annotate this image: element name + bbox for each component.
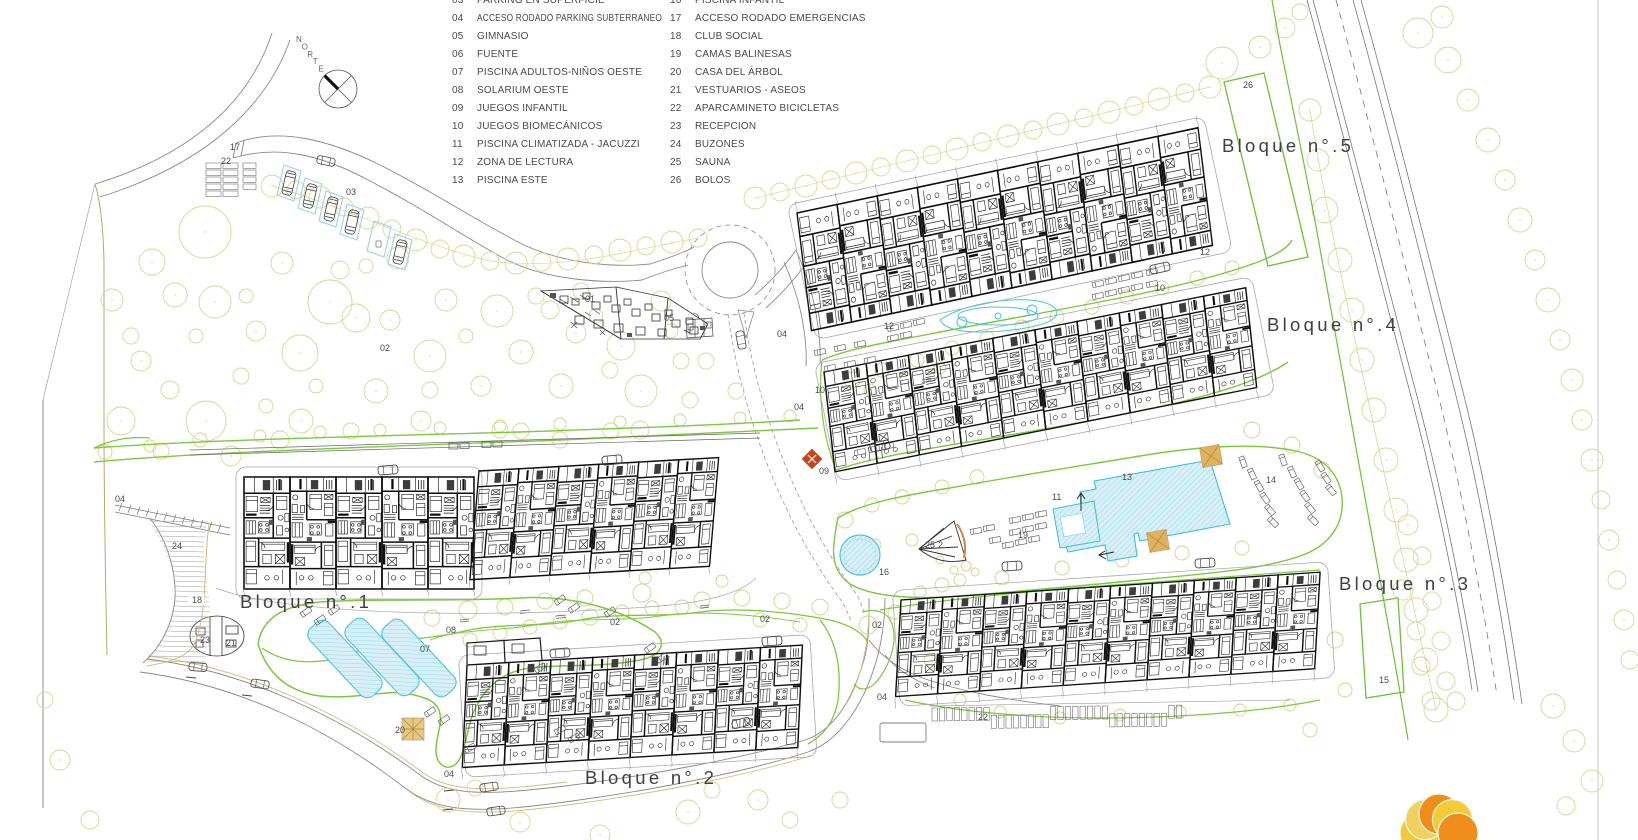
svg-text:06: 06 <box>452 49 464 60</box>
svg-text:BUZONES: BUZONES <box>695 139 745 150</box>
svg-text:08: 08 <box>452 85 464 96</box>
svg-text:22: 22 <box>670 103 682 114</box>
svg-text:04: 04 <box>794 402 804 412</box>
svg-text:RECEPCION: RECEPCION <box>695 121 756 132</box>
svg-text:PARKING EN SUPERFICIE: PARKING EN SUPERFICIE <box>477 0 605 6</box>
svg-text:03: 03 <box>346 187 356 197</box>
svg-text:24: 24 <box>172 541 182 551</box>
svg-text:CAMAS BALINESAS: CAMAS BALINESAS <box>695 49 792 60</box>
svg-text:CASA DEL ÁRBOL: CASA DEL ÁRBOL <box>695 65 783 78</box>
svg-text:26: 26 <box>670 175 682 186</box>
svg-text:26: 26 <box>1243 80 1253 90</box>
svg-text:12: 12 <box>1200 247 1210 257</box>
svg-text:Bloque n°.1: Bloque n°.1 <box>240 591 372 612</box>
svg-text:ZONA DE LECTURA: ZONA DE LECTURA <box>477 157 573 168</box>
svg-text:18: 18 <box>670 31 682 42</box>
svg-text:SAUNA: SAUNA <box>695 157 731 168</box>
svg-text:10: 10 <box>1155 283 1165 293</box>
svg-text:22: 22 <box>221 156 231 166</box>
svg-text:17: 17 <box>670 13 682 24</box>
svg-text:ACCESO RODADO PARKING SUBTERRA: ACCESO RODADO PARKING SUBTERRANEO <box>477 13 662 24</box>
svg-text:18: 18 <box>192 595 202 605</box>
svg-text:04: 04 <box>452 13 464 24</box>
svg-text:04: 04 <box>444 769 454 779</box>
svg-text:PISCINA ADULTOS-NIÑOS OESTE: PISCINA ADULTOS-NIÑOS OESTE <box>477 65 642 78</box>
svg-text:CLUB SOCIAL: CLUB SOCIAL <box>695 31 764 42</box>
svg-text:04: 04 <box>777 329 787 339</box>
svg-text:12: 12 <box>452 157 464 168</box>
svg-text:23: 23 <box>200 635 210 645</box>
svg-text:03: 03 <box>452 0 464 6</box>
svg-text:11: 11 <box>1052 492 1061 502</box>
svg-text:Bloque n°.2: Bloque n°.2 <box>585 767 717 788</box>
svg-text:05: 05 <box>452 31 464 42</box>
svg-text:07: 07 <box>452 67 464 78</box>
svg-text:24: 24 <box>670 139 682 150</box>
svg-text:02: 02 <box>760 614 770 624</box>
svg-text:BOLOS: BOLOS <box>695 175 731 186</box>
svg-text:2: 2 <box>938 540 943 550</box>
svg-text:PISCINA ESTE: PISCINA ESTE <box>477 175 548 186</box>
svg-text:04: 04 <box>115 494 125 504</box>
svg-text:10: 10 <box>815 385 825 395</box>
svg-text:21: 21 <box>670 85 682 96</box>
svg-text:04: 04 <box>877 692 887 702</box>
svg-text:17: 17 <box>230 142 240 152</box>
svg-text:PISCINA INFANTIL: PISCINA INFANTIL <box>695 0 785 6</box>
svg-text:GIMNASIO: GIMNASIO <box>477 31 529 42</box>
svg-text:01: 01 <box>585 294 595 304</box>
svg-text:JUEGOS INFANTIL: JUEGOS INFANTIL <box>477 103 568 114</box>
svg-text:12: 12 <box>884 321 894 331</box>
svg-text:ACCESO RODADO EMERGENCIAS: ACCESO RODADO EMERGENCIAS <box>695 13 866 24</box>
svg-text:19: 19 <box>1018 530 1028 540</box>
svg-text:21: 21 <box>226 638 236 648</box>
svg-text:23: 23 <box>670 121 682 132</box>
svg-text:09: 09 <box>452 103 464 114</box>
svg-text:16: 16 <box>670 0 682 6</box>
svg-text:11: 11 <box>452 139 463 150</box>
svg-text:14: 14 <box>1266 475 1276 485</box>
svg-text:08: 08 <box>446 625 456 635</box>
svg-text:25: 25 <box>670 157 682 168</box>
svg-text:20: 20 <box>395 725 405 735</box>
svg-text:22: 22 <box>978 712 988 722</box>
svg-text:07: 07 <box>420 644 430 654</box>
svg-text:19: 19 <box>670 49 682 60</box>
svg-text:09: 09 <box>819 466 829 476</box>
svg-text:PISCINA CLIMATIZADA - JACUZZI: PISCINA CLIMATIZADA - JACUZZI <box>477 139 640 150</box>
svg-text:15: 15 <box>1379 675 1389 685</box>
svg-text:T: T <box>313 57 318 66</box>
svg-text:20: 20 <box>670 67 682 78</box>
svg-text:JUEGOS BIOMECÁNICOS: JUEGOS BIOMECÁNICOS <box>477 119 603 132</box>
svg-text:25: 25 <box>925 540 935 550</box>
svg-text:Bloque n°.3: Bloque n°.3 <box>1339 573 1471 594</box>
svg-text:05: 05 <box>664 313 674 323</box>
svg-text:SOLARIUM OESTE: SOLARIUM OESTE <box>477 85 569 96</box>
svg-text:10: 10 <box>452 121 464 132</box>
svg-text:APARCAMINETO BICICLETAS: APARCAMINETO BICICLETAS <box>695 103 839 114</box>
svg-text:13: 13 <box>452 175 464 186</box>
svg-text:02: 02 <box>380 343 390 353</box>
svg-text:16: 16 <box>879 567 889 577</box>
svg-text:FUENTE: FUENTE <box>477 49 518 60</box>
svg-text:VESTUARIOS - ASEOS: VESTUARIOS - ASEOS <box>695 85 806 96</box>
svg-text:E: E <box>318 65 323 74</box>
svg-text:02: 02 <box>610 617 620 627</box>
svg-text:13: 13 <box>1122 472 1132 482</box>
svg-text:Bloque n°.5: Bloque n°.5 <box>1222 135 1354 156</box>
svg-text:02: 02 <box>872 620 882 630</box>
svg-text:Bloque n°.4: Bloque n°.4 <box>1267 314 1399 335</box>
